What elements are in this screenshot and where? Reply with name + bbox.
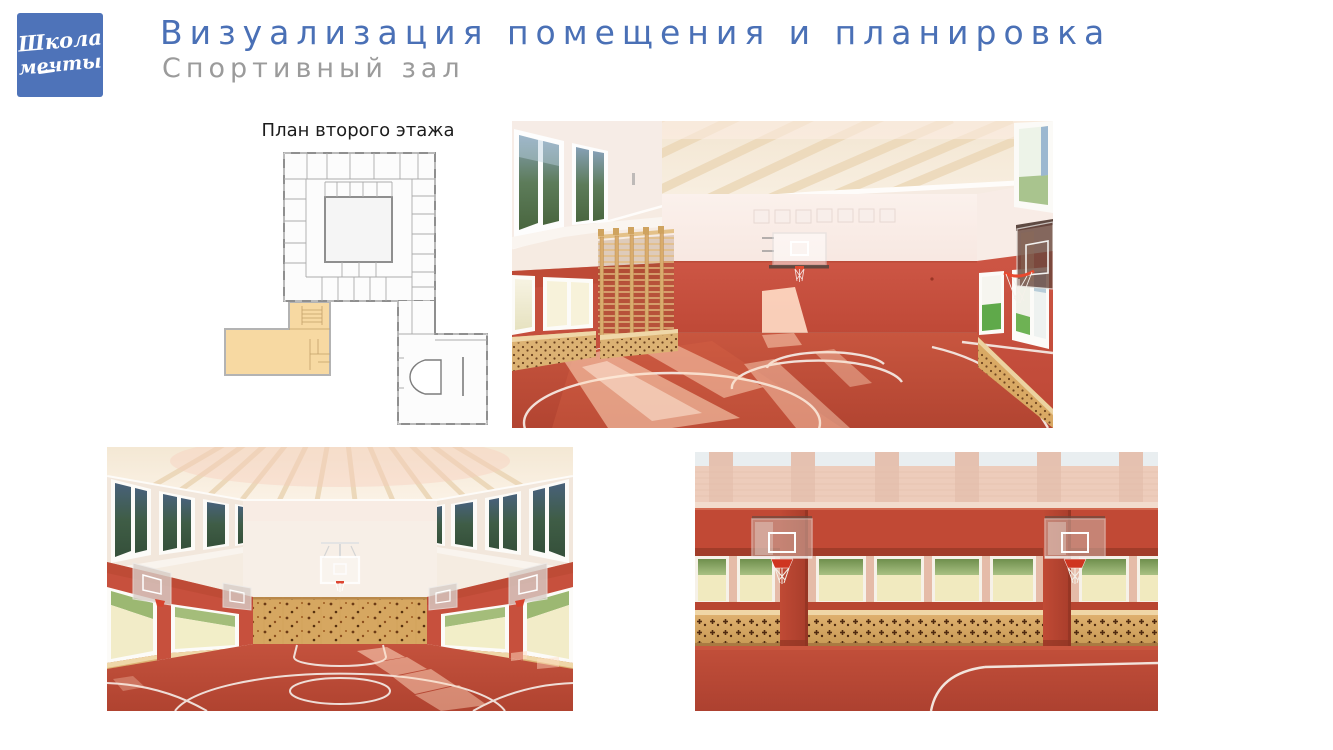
page-title: Визуализация помещения и планировка (160, 13, 1111, 52)
wall-bars (598, 226, 674, 337)
safety-net-band (695, 466, 1158, 510)
gym3-floor (695, 646, 1158, 711)
render-gym-perspective (512, 121, 1053, 428)
basketball-hoop-hanging (771, 559, 793, 568)
slide: Школа мечты Визуализация помещения и пла… (0, 0, 1333, 750)
floor-plan-label: План второго этажа (222, 120, 494, 141)
plan-stage (410, 360, 441, 394)
clerestory-strip (695, 452, 1158, 468)
lower-windows-left (512, 275, 593, 335)
basketball-hoop-back (795, 266, 804, 269)
plan-right-wing (398, 301, 487, 424)
floor-plan-drawing (222, 144, 494, 434)
page-subtitle: Спортивный зал (162, 53, 465, 84)
wall-panels (754, 209, 895, 223)
plan-gym-highlight (225, 302, 330, 375)
school-logo: Школа мечты (17, 13, 103, 97)
render-gym-end-wall (107, 447, 573, 711)
gym2-end-wall (243, 501, 437, 644)
clerestory-window-right (1014, 121, 1053, 213)
render-gym-side-wall (695, 452, 1158, 711)
plan-main-building (284, 153, 435, 301)
window-row (695, 556, 1158, 612)
radiator-band (695, 610, 1158, 646)
climbing-wall (245, 597, 435, 644)
